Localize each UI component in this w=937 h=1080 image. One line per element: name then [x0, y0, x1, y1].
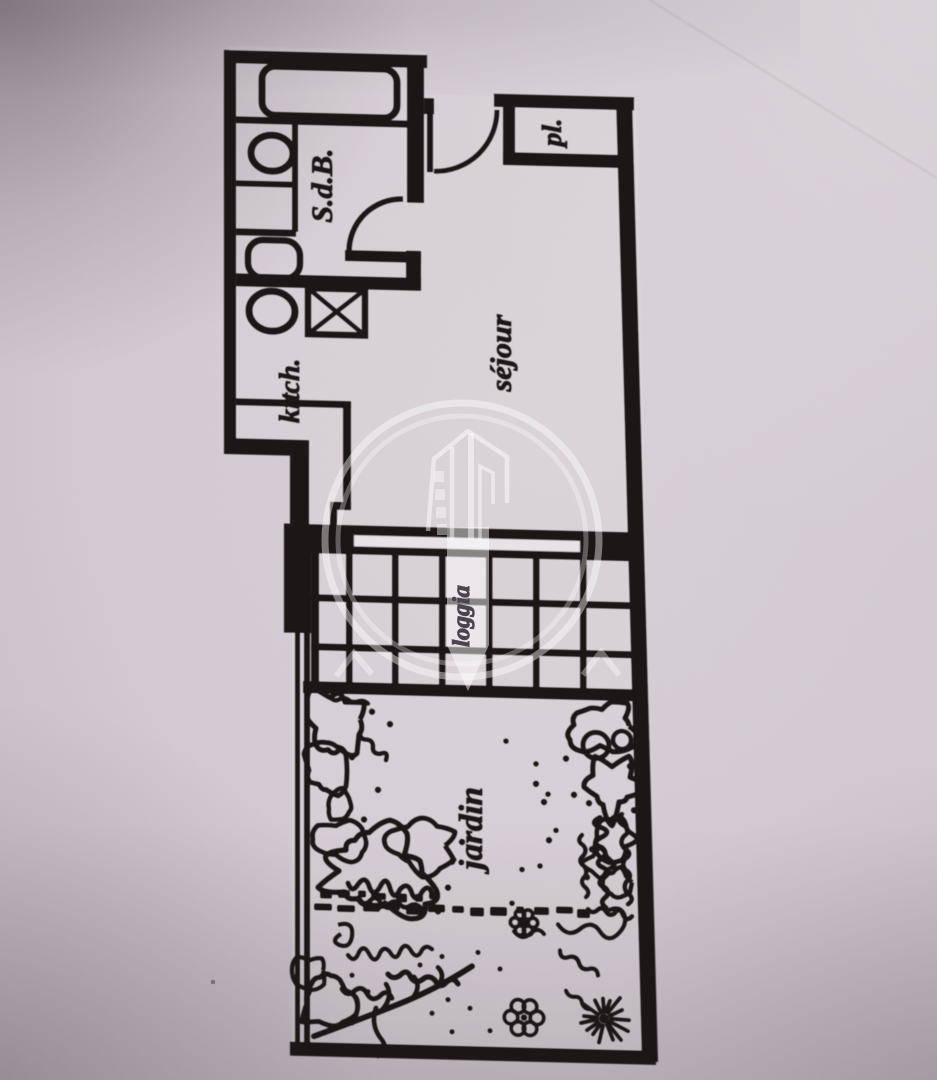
svg-text:pl.: pl.	[537, 118, 567, 149]
svg-text:S.d.B.: S.d.B.	[306, 148, 339, 223]
svg-text:jardin: jardin	[454, 787, 490, 875]
svg-text:loggia: loggia	[449, 585, 475, 647]
svg-text:kitch.: kitch.	[275, 358, 306, 423]
svg-text:séjour: séjour	[485, 314, 518, 393]
